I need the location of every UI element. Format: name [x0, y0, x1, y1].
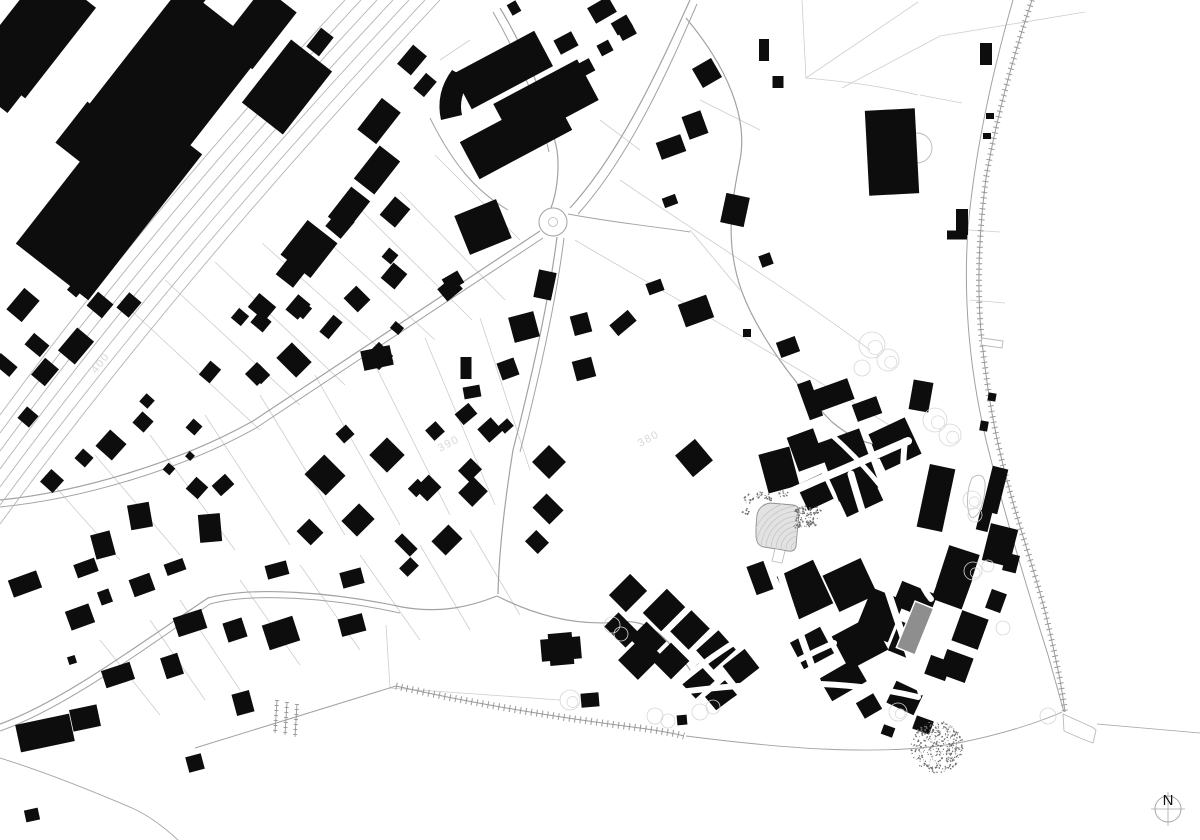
site-plan-map: 400390380N: [0, 0, 1200, 840]
roundabout: [539, 208, 567, 236]
north-label: N: [1163, 792, 1174, 809]
building-footprint: [980, 43, 992, 65]
building-footprint: [743, 329, 751, 337]
building-footprint: [677, 715, 688, 726]
building-footprint: [947, 231, 967, 240]
building-footprint: [979, 420, 989, 431]
building-footprint: [548, 632, 575, 666]
building-footprint: [773, 76, 784, 88]
building-footprint: [127, 502, 153, 530]
building-footprint: [986, 113, 994, 119]
site-plan-svg: 400390380N: [0, 0, 1200, 840]
building-footprint: [759, 39, 769, 61]
building-footprint: [983, 133, 991, 139]
building-footprint: [987, 392, 996, 401]
building-footprint: [865, 108, 919, 196]
building-footprint: [461, 357, 472, 379]
building-footprint: [198, 513, 222, 543]
building-footprint: [580, 692, 599, 708]
